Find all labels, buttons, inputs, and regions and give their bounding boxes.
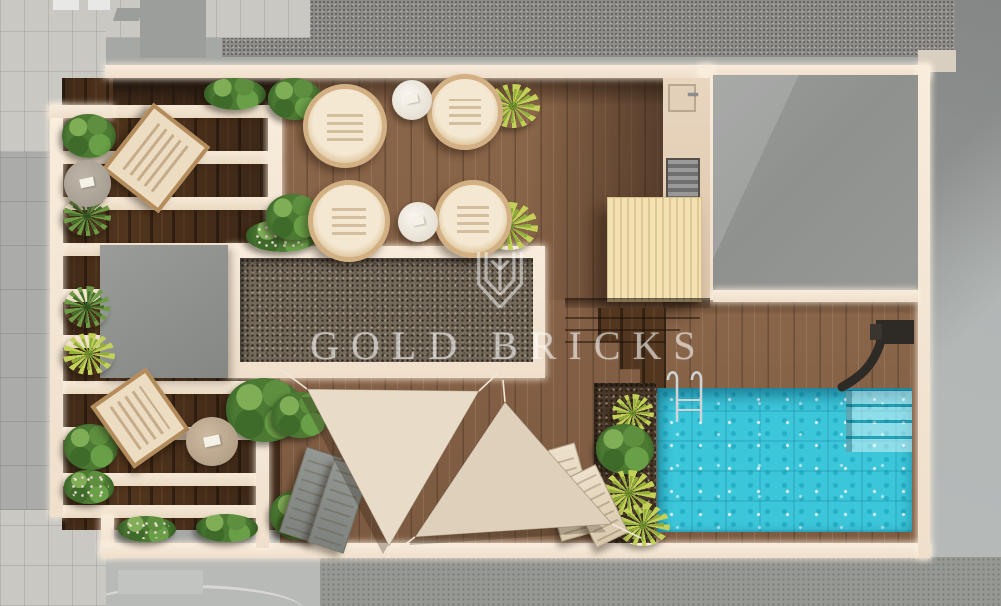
- watermark-text: GOLD BRICKS: [310, 322, 690, 369]
- rooftop-terrace-render: GOLD BRICKS: [0, 0, 1001, 606]
- gold-bricks-logo-icon: [468, 246, 532, 318]
- pool-ladder: [668, 372, 701, 422]
- pool-shower: [842, 320, 914, 387]
